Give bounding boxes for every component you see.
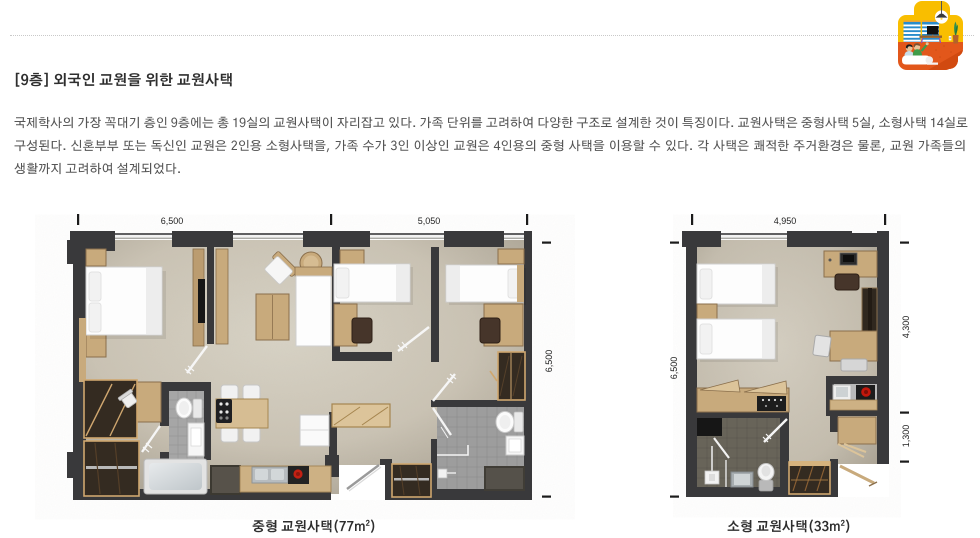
svg-text:6,500: 6,500: [669, 357, 679, 380]
svg-text:4,950: 4,950: [774, 216, 797, 226]
svg-text:1,300: 1,300: [901, 425, 911, 448]
svg-text:6,500: 6,500: [161, 216, 184, 226]
svg-text:6,500: 6,500: [544, 350, 554, 373]
svg-text:5,050: 5,050: [418, 216, 441, 226]
svg-text:4,300: 4,300: [901, 316, 911, 339]
